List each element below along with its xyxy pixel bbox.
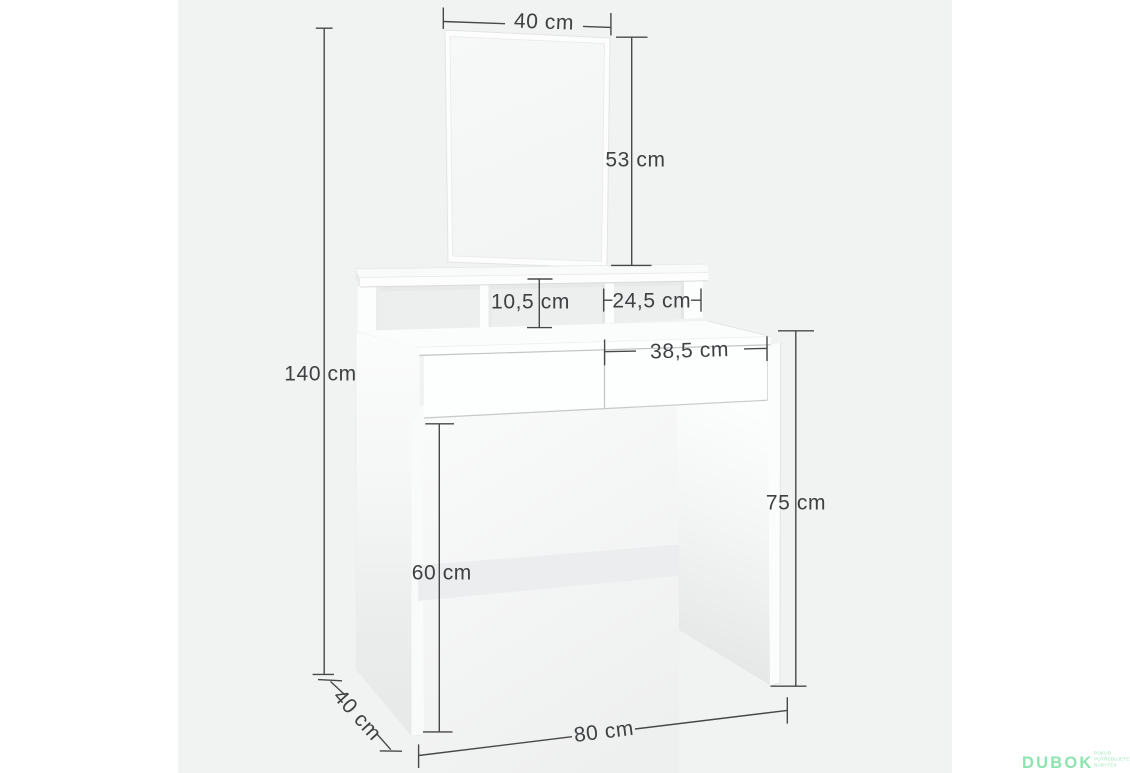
svg-text:DUBOK: DUBOK xyxy=(1022,754,1094,772)
svg-text:24,5 cm: 24,5 cm xyxy=(612,290,691,313)
svg-text:40 cm: 40 cm xyxy=(514,10,575,35)
svg-text:10,5 cm: 10,5 cm xyxy=(491,290,570,313)
svg-text:POKUD: POKUD xyxy=(1094,751,1112,756)
svg-text:60 cm: 60 cm xyxy=(412,561,472,584)
svg-text:75 cm: 75 cm xyxy=(766,491,826,514)
svg-text:38,5 cm: 38,5 cm xyxy=(650,338,730,363)
svg-text:53 cm: 53 cm xyxy=(605,148,665,171)
svg-text:NÁBYTEK: NÁBYTEK xyxy=(1094,762,1118,768)
svg-text:140 cm: 140 cm xyxy=(284,362,356,385)
svg-text:POTŘEBUJETE: POTŘEBUJETE xyxy=(1094,755,1130,762)
